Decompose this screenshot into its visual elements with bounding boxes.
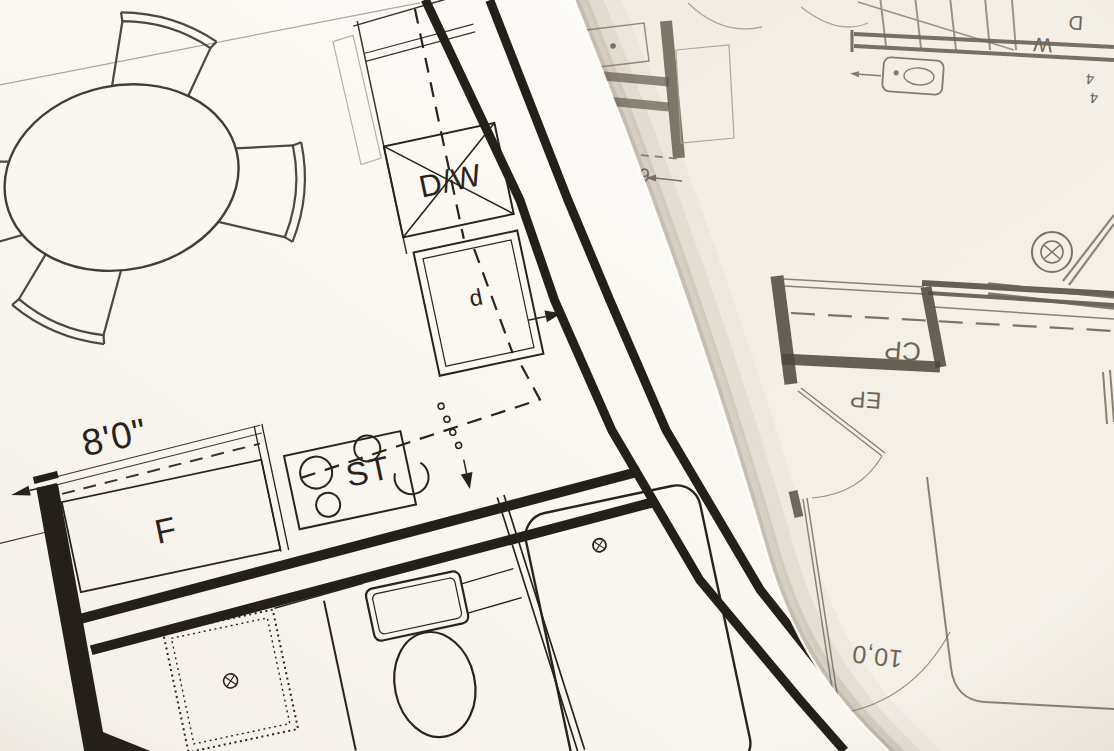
blueprint-photo: W D 4 4 F 0.9 <box>0 0 1114 751</box>
blueprint-scene: W D 4 4 F 0.9 <box>0 0 1114 751</box>
vignette-overlay <box>0 0 1114 751</box>
